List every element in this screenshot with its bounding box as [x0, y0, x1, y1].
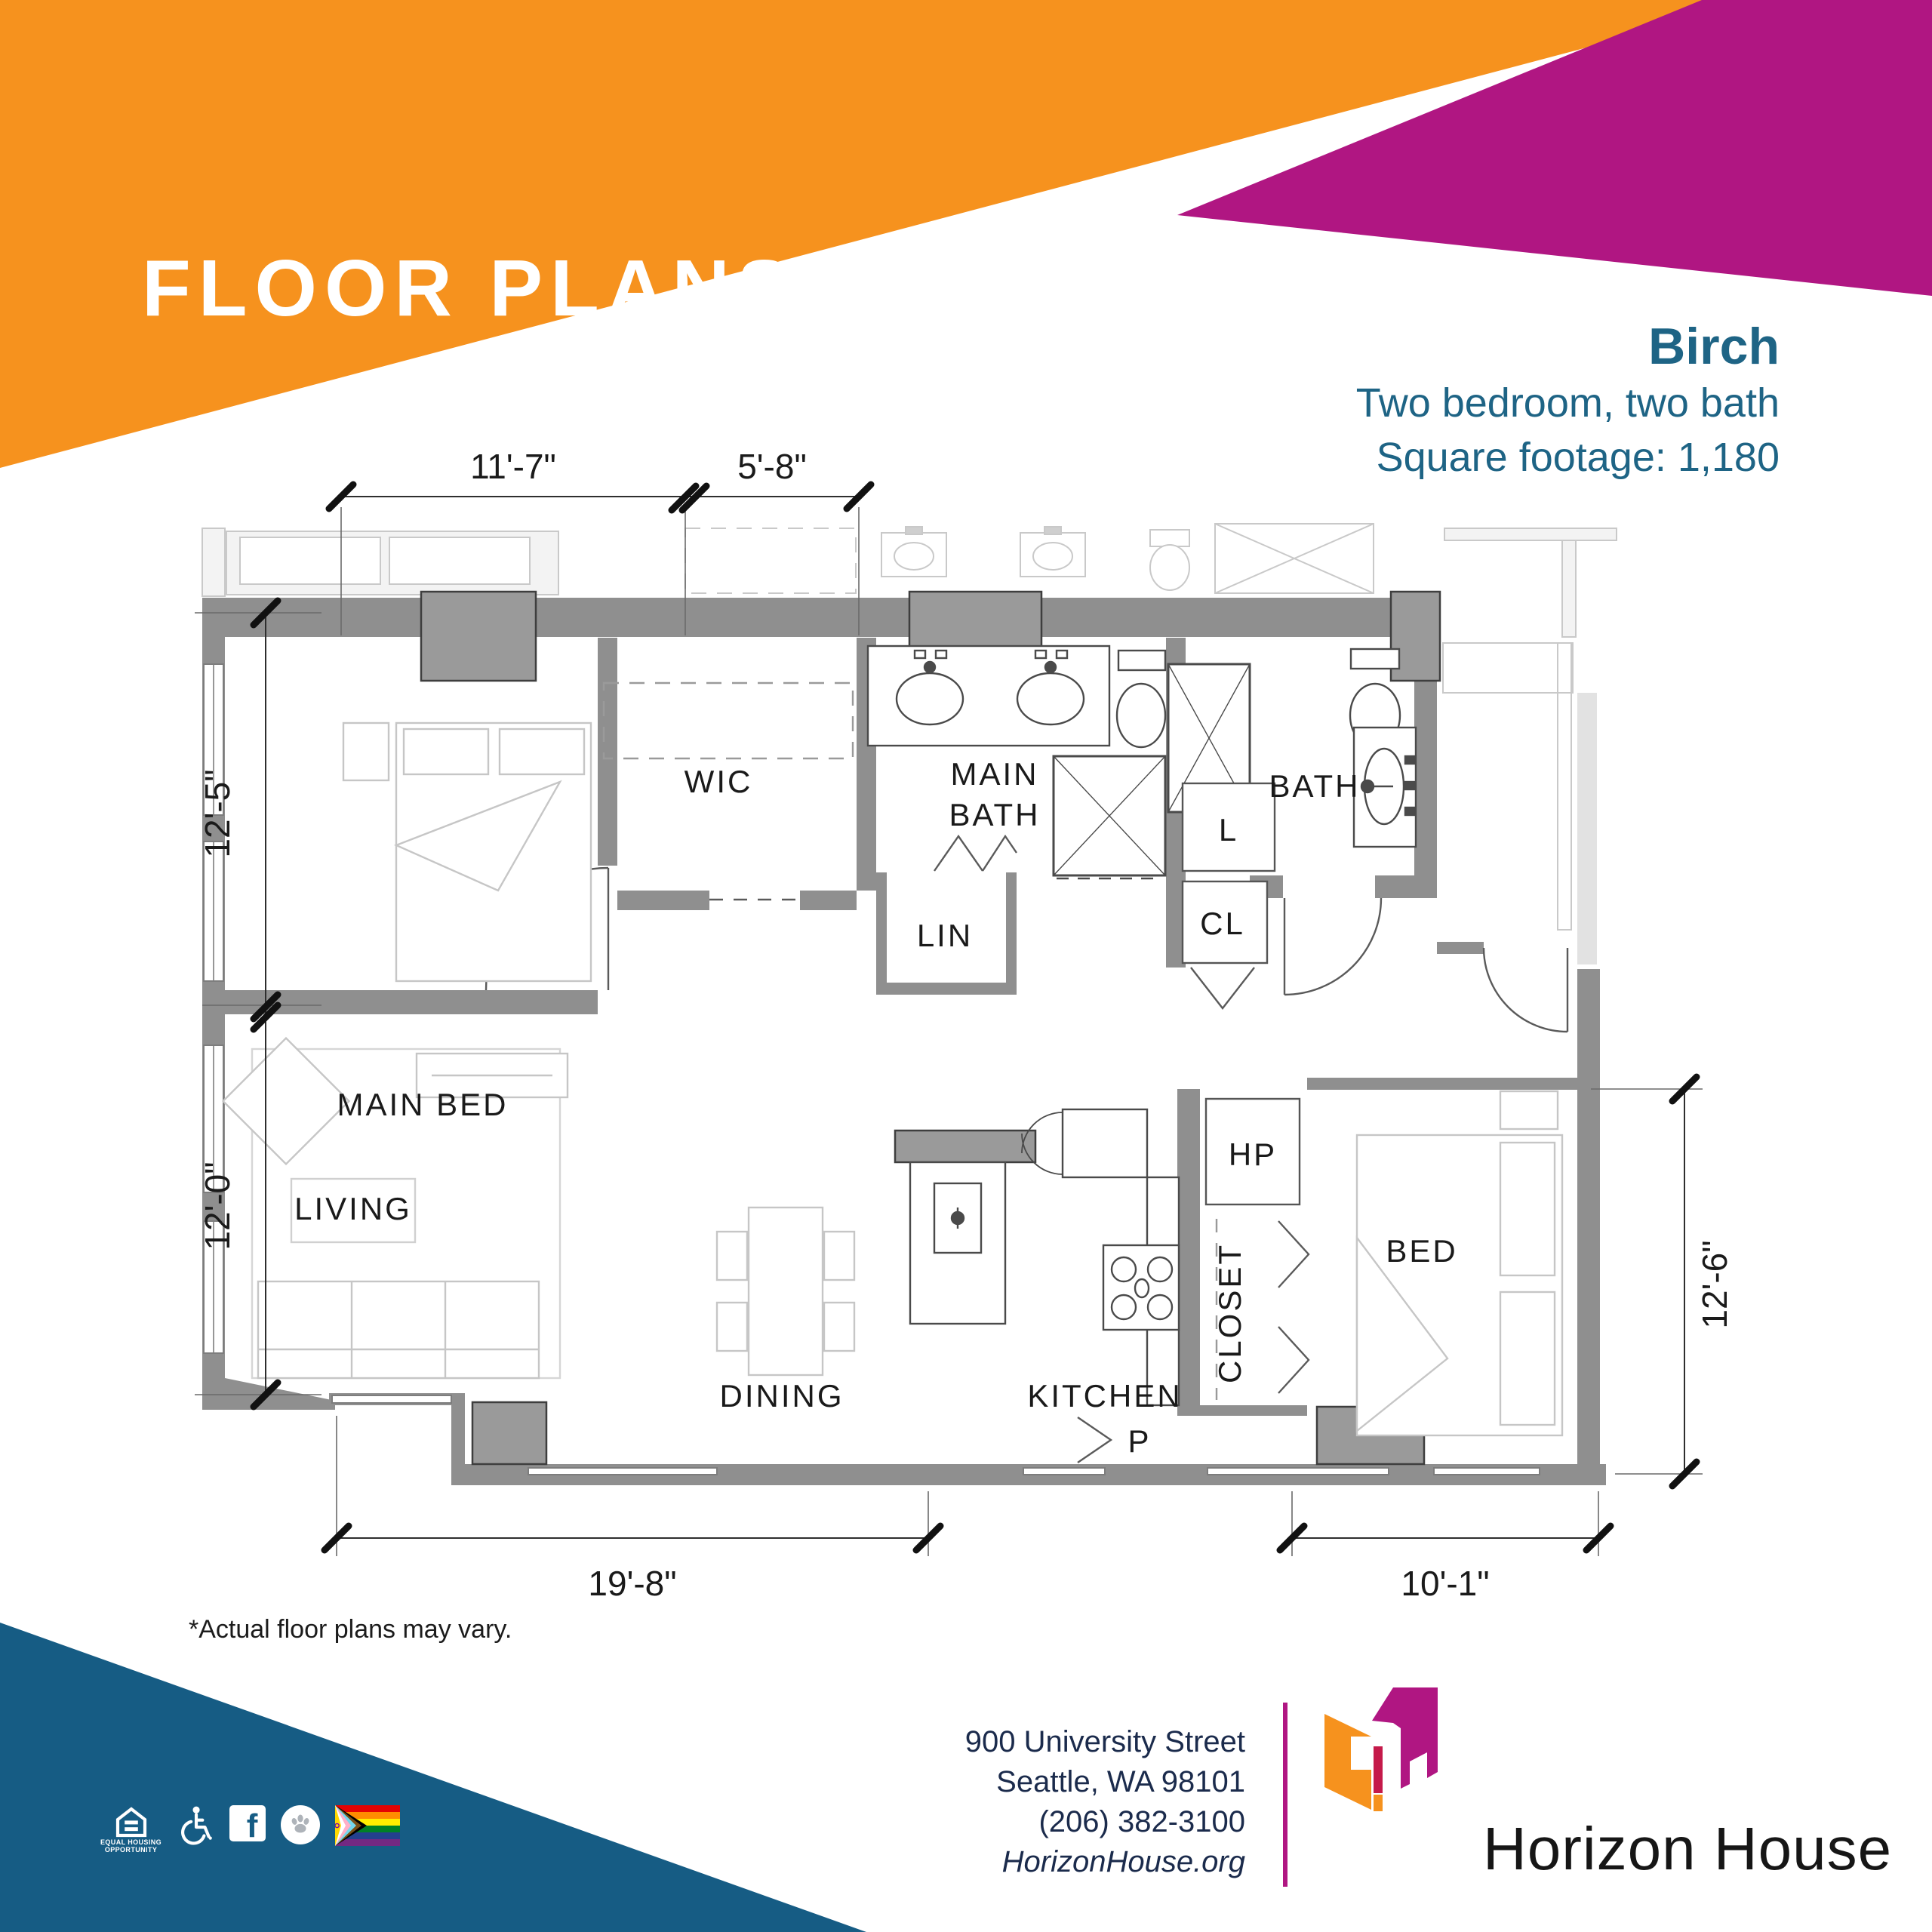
- website-link[interactable]: HorizonHouse.org: [965, 1842, 1245, 1882]
- equal-housing-label-2: OPPORTUNITY: [105, 1846, 157, 1854]
- label-cl: CL: [1200, 906, 1245, 941]
- label-lin: LIN: [917, 918, 973, 953]
- footer-divider: [1283, 1703, 1287, 1887]
- label-main-bed: MAIN BED: [337, 1087, 508, 1122]
- phone-number: (206) 382-3100: [965, 1802, 1245, 1842]
- disclaimer-text: *Actual floor plans may vary.: [189, 1615, 512, 1644]
- dim-bottom-right: 10'-1": [1401, 1564, 1489, 1603]
- dim-left-lower: 12'-0": [198, 1161, 237, 1250]
- label-dining: DINING: [720, 1378, 844, 1414]
- label-main-bath-2: BATH: [949, 797, 1041, 832]
- label-laundry: L: [1219, 812, 1238, 848]
- label-pantry: P: [1128, 1423, 1151, 1459]
- label-bath: BATH: [1269, 768, 1361, 804]
- equal-housing-icon: EQUAL HOUSING OPPORTUNITY: [100, 1805, 162, 1854]
- label-wic: WIC: [685, 764, 753, 799]
- dim-left-upper: 12'-5": [198, 769, 237, 857]
- label-living: LIVING: [294, 1191, 412, 1226]
- label-kitchen: KITCHEN: [1027, 1378, 1182, 1414]
- dim-top-left: 11'-7": [470, 447, 556, 486]
- horizon-house-wordmark: Horizon House: [1483, 1814, 1892, 1884]
- dim-top-right: 5'-8": [737, 447, 807, 486]
- footer-address-block: 900 University Street Seattle, WA 98101 …: [965, 1722, 1245, 1882]
- dim-bottom-left: 19'-8": [588, 1564, 676, 1603]
- pride-flag-icon: [335, 1805, 400, 1846]
- horizon-house-logo-icon: [1323, 1683, 1444, 1819]
- label-hp: HP: [1229, 1137, 1277, 1172]
- inclusion-icon-row: EQUAL HOUSING OPPORTUNITY f: [100, 1805, 400, 1854]
- address-line-1: 900 University Street: [965, 1722, 1245, 1762]
- flyer-page: FLOOR PLANS Birch Two bedroom, two bath …: [0, 0, 1932, 1932]
- facebook-icon[interactable]: f: [229, 1805, 266, 1841]
- facebook-letter: f: [247, 1811, 258, 1841]
- label-main-bath-1: MAIN: [951, 756, 1039, 792]
- dim-right: 12'-6": [1695, 1240, 1734, 1328]
- accessibility-icon: [177, 1805, 214, 1846]
- address-line-2: Seattle, WA 98101: [965, 1762, 1245, 1802]
- equal-housing-label-1: EQUAL HOUSING: [100, 1838, 162, 1846]
- label-closet: CLOSET: [1212, 1243, 1247, 1383]
- label-bed: BED: [1386, 1233, 1457, 1269]
- paw-icon: [281, 1805, 320, 1844]
